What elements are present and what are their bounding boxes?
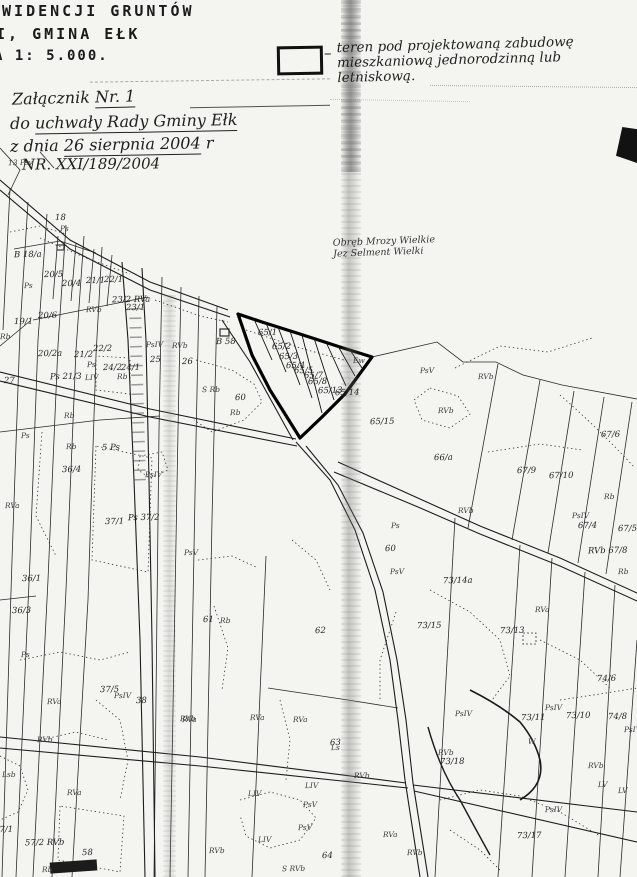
handwritten-attachment-line: Załącznik Nr. 1 [12,86,136,108]
date-text: 26 sierpnia 2004 [64,133,201,156]
legend-dash: – [324,44,332,62]
scanned-map-page: EWIDENCJI GRUNTÓW I, GMINA EŁK A 1: 5.00… [0,0,637,877]
roads [0,180,637,877]
attachment-word: Załącznik [12,88,90,109]
region-label: Obręb Mrozy Wielkie Jez Selment Wielki [333,234,436,260]
stream-lines [428,690,541,855]
map-title: EWIDENCJI GRUNTÓW [0,2,195,20]
legend-swatch [277,46,323,76]
resolution-prefix: do [10,114,30,133]
attachment-number: Nr. 1 [95,86,136,108]
map-subtitle-gmina: I, GMINA EŁK [0,25,140,43]
road-hatch [135,308,140,482]
handwritten-resolution-number: NR. XXI/189/2004 [22,154,160,173]
date-suffix: r [206,133,214,152]
handwritten-date-line: z dnia 26 sierpnia 2004 r [10,133,214,156]
legend-text: teren pod projektowaną zabudowę mieszkan… [336,35,574,86]
handwritten-resolution-line: do uchwały Rady Gminy Ełk [10,110,238,133]
land-class-boundaries [0,226,637,872]
date-prefix: z dnia [10,136,59,156]
resolution-text: uchwały Rady Gminy Ełk [35,110,238,135]
map-scale: A 1: 5.000. [0,48,109,64]
